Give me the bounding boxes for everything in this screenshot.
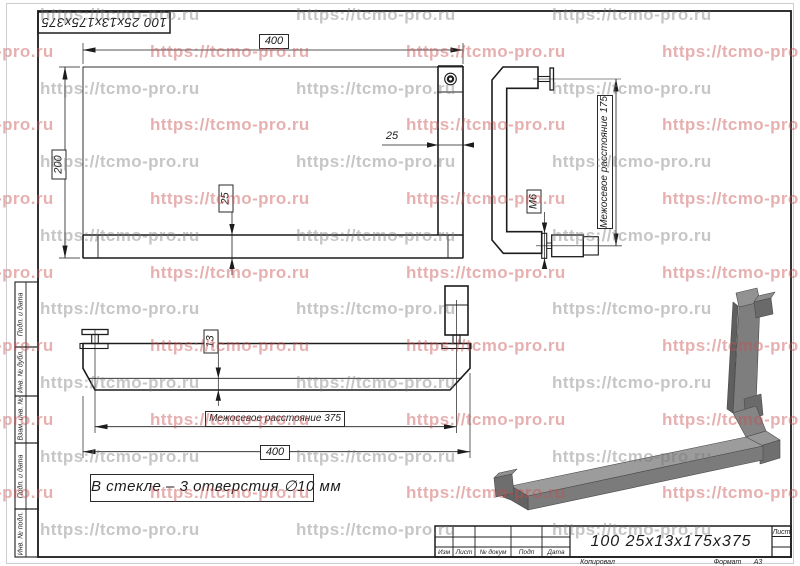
titleblock-col-data: Дата bbox=[542, 548, 570, 558]
iso-view bbox=[494, 288, 780, 510]
glass-note: В стекле – 3 отверстия ∅10 мм bbox=[90, 474, 314, 502]
titleblock-col-izm: Изм bbox=[435, 548, 453, 558]
dim-front-width: 400 bbox=[260, 445, 290, 460]
sidebar-label-inv-podl: Инв. № подл. bbox=[15, 511, 26, 555]
titleblock-designation: 100 25x13x175x375 bbox=[570, 526, 772, 557]
titleblock-copied-label: Копировал bbox=[560, 558, 635, 566]
titleblock-col-podp: Подп bbox=[511, 548, 542, 558]
sidebar-label-podp-data-1: Подп. и дата bbox=[15, 286, 26, 344]
dim-top-width: 400 bbox=[259, 34, 289, 49]
sidebar-label-vzam-inv: Взам. инв. № bbox=[15, 399, 26, 441]
dim-axes-vertical: Межосевое расстояние 175 bbox=[597, 95, 613, 229]
dim-post-width: 25 bbox=[380, 130, 404, 143]
stamp-designation-text: 100 25x13x175x375 bbox=[38, 12, 170, 33]
dim-thickness: 13 bbox=[204, 329, 219, 353]
sidebar-label-inv-dubl: Инв. № дубл. bbox=[15, 350, 26, 394]
titleblock-format-label: Формат bbox=[705, 558, 750, 566]
titleblock-col-list: Лист bbox=[453, 548, 475, 558]
titleblock-format-value: А3 bbox=[748, 558, 768, 566]
sidebar-label-podp-data-2: Подп. и дата bbox=[15, 446, 26, 506]
dim-axes-horizontal: Межосевое расстояние 375 bbox=[205, 411, 345, 427]
stamp-designation: 100 25x13x175x375 bbox=[38, 12, 170, 33]
drawing-sheet: 100 25x13x175x375 400 200 25 25 M6 Межос… bbox=[0, 0, 800, 566]
dim-top-height: 200 bbox=[52, 149, 67, 179]
front-view bbox=[80, 286, 471, 458]
dim-bar-height: 25 bbox=[219, 184, 234, 212]
titleblock-col-doc: № докум bbox=[475, 548, 511, 558]
dim-thread: M6 bbox=[527, 189, 542, 213]
titleblock-sheet-label: Лист bbox=[772, 528, 791, 537]
top-view bbox=[59, 43, 474, 275]
